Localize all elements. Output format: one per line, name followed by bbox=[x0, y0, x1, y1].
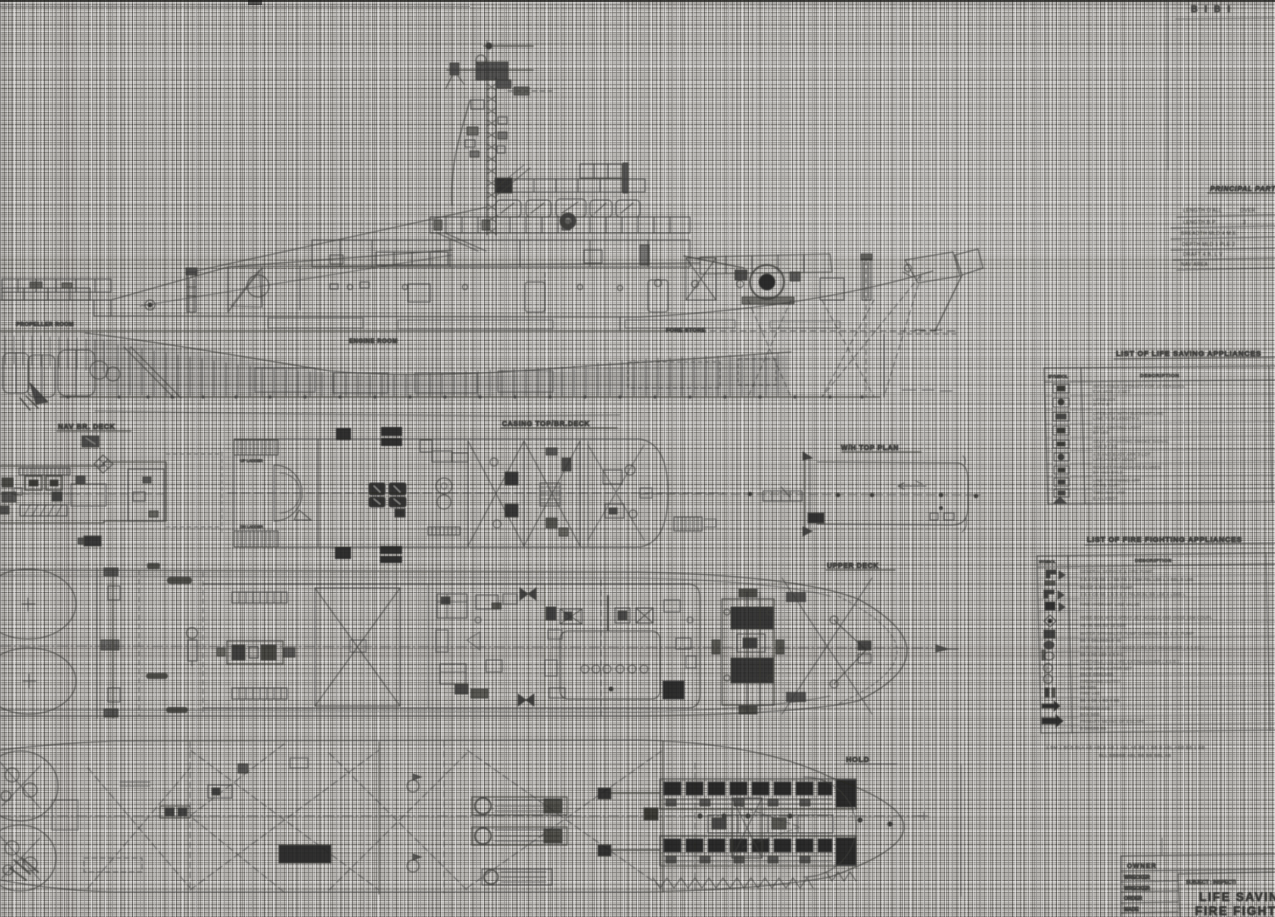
svg-text:FIREMAN AXE: FIREMAN AXE bbox=[1080, 706, 1110, 711]
svg-text:BB 3 BB 1 BB 3 BB: BB 3 BB 1 BB 3 BB bbox=[1080, 698, 1120, 703]
svg-text:LENGTH B.P: LENGTH B.P bbox=[1183, 220, 1216, 226]
svg-text:W/H TOP PLAN: W/H TOP PLAN bbox=[841, 445, 899, 452]
svg-text:BREADTH MLD 4 M.E.: BREADTH MLD 4 M.E. bbox=[1181, 231, 1238, 237]
svg-text:PROPELLER ROOM: PROPELLER ROOM bbox=[16, 322, 74, 328]
svg-text:BY AND BYLE: BY AND BYLE bbox=[1093, 470, 1123, 475]
svg-text:BB 3 BBLBBBLB 3B: BB 3 BBLBBBLB 3B bbox=[1080, 638, 1121, 643]
svg-text:3 B 4 CB BB 1 B B B 3 PBLB: 3 B 4 CB BB 1 B B B 3 PBLBCBL BB LBB 4 L… bbox=[1080, 592, 1186, 597]
svg-text:WRECKER: WRECKER bbox=[1124, 875, 1150, 881]
svg-text:BLL BBBBB ABL BB BB BBL AB: BLL BBBBB ABL BB BB BBL AB bbox=[1099, 753, 1171, 758]
svg-text:3: 3 bbox=[1243, 220, 1246, 226]
svg-text:LENGTH O'ALL: LENGTH O'ALL bbox=[1183, 208, 1222, 214]
svg-text:DN LADDER: DN LADDER bbox=[240, 524, 263, 529]
svg-text:HOLD: HOLD bbox=[846, 755, 870, 764]
svg-text:SUBJECT : INSPECTI: SUBJECT : INSPECTI bbox=[1186, 880, 1236, 886]
svg-text:FIRE HYDRANT LINE VALVE: FIRE HYDRANT LINE VALVE bbox=[1080, 602, 1140, 607]
svg-text:FIRE AXE: FIRE AXE bbox=[1080, 691, 1100, 696]
svg-text:TWO WAY VHF: TWO WAY VHF bbox=[1093, 490, 1126, 495]
svg-text:CASING TOP/BR.DECK: CASING TOP/BR.DECK bbox=[502, 421, 590, 428]
svg-text:LINE 75 M LENGTH 4: LINE 75 M LENGTH 4 bbox=[1093, 416, 1140, 421]
svg-text:LIFEJACKET ADULT: LIFEJACKET ADULT bbox=[1093, 457, 1137, 462]
svg-text:LIST OF FIRE FIGHTING APPLIANC: LIST OF FIRE FIGHTING APPLIANCES bbox=[1087, 535, 1242, 544]
svg-text:FOAM APPLICATOR SET: FOAM APPLICATOR SET bbox=[1080, 666, 1133, 671]
svg-text:1 BM 1 BCB BLA AB ABLB AB: 1 BM 1 BCB BLA AB ABLB AB 1 ABL AB BB 1 … bbox=[1046, 745, 1205, 750]
svg-text:1: 1 bbox=[1046, 678, 1049, 684]
svg-text:WATER SPRINKLER PUMP COMBINED: WATER SPRINKLER PUMP COMBINED W. G.S. PU… bbox=[1080, 631, 1194, 636]
svg-text:AND BY EE: AND BY EE bbox=[1093, 444, 1118, 449]
svg-text:BB 4 BB LBB 4 B KG: BB 4 BB LBB 4 B KG bbox=[1080, 652, 1123, 657]
svg-text:PRINCIPAL PART: PRINCIPAL PART bbox=[1210, 186, 1275, 193]
svg-text:FIREMANS OUTFIT: FIREMANS OUTFIT bbox=[1080, 679, 1121, 684]
svg-text:MADE: MADE bbox=[1124, 907, 1139, 913]
svg-text:B BBBBB BB: B BBBBB BB bbox=[1080, 726, 1107, 731]
svg-text:UPPER DECK: UPPER DECK bbox=[827, 563, 879, 570]
svg-text:PORTABLE DRY POWDER FIRE EXTIN: PORTABLE DRY POWDER FIRE EXTINGUISHER ( … bbox=[1080, 645, 1204, 650]
svg-text:B A L EBOY: B A L EBOY bbox=[1093, 496, 1118, 501]
svg-text:LIST OF LIFE SAVING APPLIANCES: LIST OF LIFE SAVING APPLIANCES bbox=[1116, 349, 1262, 358]
svg-text:OVER: OVER bbox=[1240, 208, 1255, 214]
svg-text:WRECKER: WRECKER bbox=[1124, 886, 1150, 892]
svg-text:NAV BR. DECK: NAV BR. DECK bbox=[58, 424, 115, 431]
svg-text:AB 3B BBLBB 1B BBB: AB 3B BBLBB 1B BBB bbox=[1080, 623, 1126, 628]
svg-text:UP LADDER: UP LADDER bbox=[240, 458, 263, 463]
svg-text:D T Y B: D T Y B bbox=[1093, 402, 1109, 407]
svg-text:OWNER: OWNER bbox=[1127, 863, 1157, 870]
svg-text:EVA 4835 / 2 SET: EVA 4835 / 2 SET bbox=[1093, 389, 1131, 394]
svg-text:ORDER: ORDER bbox=[1124, 896, 1142, 902]
svg-text:GENERAL SERVICE & FIRE PUMP: GENERAL SERVICE & FIRE PUMP bbox=[1080, 569, 1153, 574]
svg-text:BY LEE: BY LEE bbox=[1093, 430, 1109, 435]
svg-text:BBLB BBBLBBB: BBLB BBBLBBB bbox=[1080, 672, 1113, 677]
svg-text:3 B 4 CB BB 1 / BB PB 3 CBM PB: 3 B 4 CB BB 1 / BB PB 3 CBM PBL LBB L 3 … bbox=[1080, 577, 1193, 582]
svg-text:SYMBOL: SYMBOL bbox=[1039, 559, 1056, 564]
svg-text:LIFE SAVING: LIFE SAVING bbox=[1199, 890, 1275, 904]
svg-text:FIRE FIGHTING: FIRE FIGHTING bbox=[1195, 904, 1275, 917]
svg-text:BIBI: BIBI bbox=[1191, 4, 1237, 14]
svg-text:DRAFT 4 B. L V: DRAFT 4 B. L V bbox=[1183, 252, 1223, 258]
svg-text:PORTABLE CO2 FIRE EXTINGUISHER: PORTABLE CO2 FIRE EXTINGUISHER ( 4.5 B ) bbox=[1080, 659, 1179, 664]
svg-text:BOX BBB: BOX BBB bbox=[1080, 712, 1100, 717]
svg-text:DESCRIPTION: DESCRIPTION bbox=[1135, 558, 1172, 563]
svg-text:2: 2 bbox=[1046, 667, 1049, 673]
svg-text:ENGINE ROOM: ENGINE ROOM bbox=[349, 339, 398, 345]
svg-text:BB BBB: BB BBB bbox=[1080, 685, 1096, 690]
svg-text:HOSE BOX WITH SPRAY JET NOZZLE: HOSE BOX WITH SPRAY JET NOZZLE AND HOSE … bbox=[1080, 615, 1213, 620]
svg-text:PRIMARY MEANS OF ESCAPE: PRIMARY MEANS OF ESCAPE bbox=[1080, 719, 1145, 724]
svg-text:BILGE & BALLAST PUMP: BILGE & BALLAST PUMP bbox=[1080, 585, 1133, 590]
svg-text:EPIRB SART: EPIRB SART bbox=[1093, 483, 1121, 488]
svg-text:SYMBOL: SYMBOL bbox=[1048, 374, 1068, 380]
svg-text:FORE STORE: FORE STORE bbox=[666, 328, 706, 334]
svg-text:NAV AREA: NAV AREA bbox=[1181, 262, 1208, 268]
svg-text:DESCRIPTION: DESCRIPTION bbox=[1140, 373, 1179, 379]
svg-text:DEPTH MLD 1 PLE 2: DEPTH MLD 1 PLE 2 bbox=[1182, 242, 1235, 248]
